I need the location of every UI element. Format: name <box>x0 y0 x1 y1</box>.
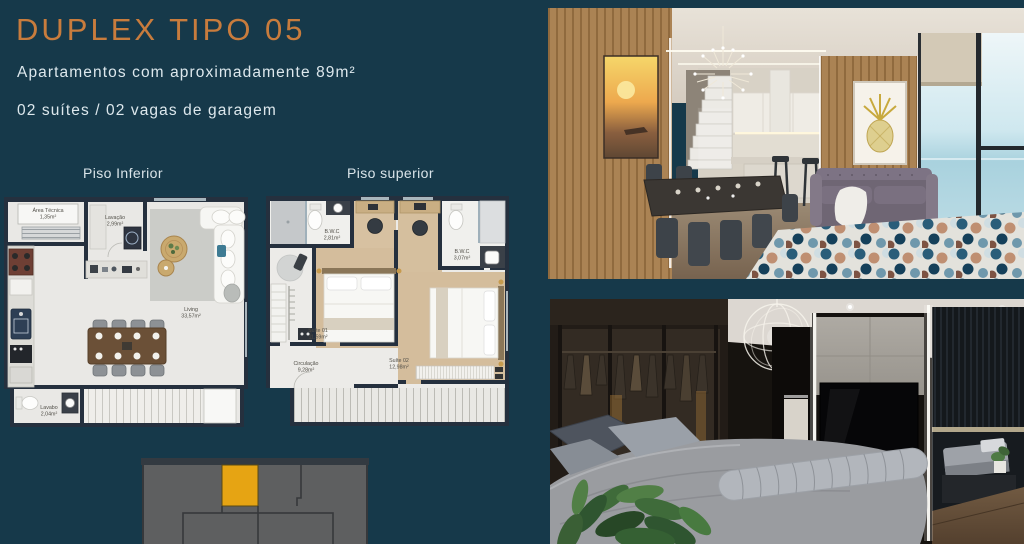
subtitle-area: Apartamentos com aproximadamente 89m² <box>17 64 356 82</box>
brochure-page: DUPLEX TIPO 05 Apartamentos com aproxima… <box>0 0 1024 544</box>
room-label-area-tecnica: Área Técnica <box>32 207 63 214</box>
mirror-reflection <box>924 305 1024 544</box>
page-title: DUPLEX TIPO 05 <box>16 12 306 48</box>
room-area-living: 33,57m² <box>181 314 201 320</box>
label-piso-superior: Piso superior <box>347 165 434 181</box>
kitchen-counter-items <box>86 261 147 278</box>
label-piso-inferior: Piso Inferior <box>83 165 163 181</box>
room-label-bwc1: B.W.C <box>324 229 339 235</box>
room-label-circulacao: Circulação <box>293 361 318 367</box>
suite-1-bed <box>317 268 402 342</box>
room-area-lavacao: 2,99m² <box>107 222 124 228</box>
keyplan-unit-locator <box>141 458 373 544</box>
seascape-painting <box>604 56 658 158</box>
room-label-suite1: Suíte 01 <box>308 328 328 334</box>
keyplan-highlighted-unit <box>222 465 258 506</box>
room-area-suite1: 11,59m² <box>308 335 327 341</box>
room-area-circulacao: 9,28m² <box>298 368 315 374</box>
kitchen <box>8 246 34 387</box>
deck <box>84 389 236 423</box>
room-area-suite2: 12,98m² <box>389 365 409 371</box>
room-area-bwc1: 2,81m² <box>324 236 341 242</box>
room-area-bwc2: 3,07m² <box>454 256 471 262</box>
photo-bedroom-render <box>550 299 1024 544</box>
staircase <box>686 70 732 169</box>
floorplan-piso-superior: B.W.C 2,81m² B.W.C 3,07m² Suíte 01 11,59… <box>266 196 509 426</box>
room-label-lavabo: Lavabo <box>40 405 57 411</box>
room-label-living: Living <box>184 307 198 313</box>
subtitle-features: 02 suítes / 02 vagas de garagem <box>17 102 277 120</box>
room-area-lavabo: 2,04m² <box>41 412 58 418</box>
room-label-bwc2: B.W.C <box>454 249 469 255</box>
throw-blanket <box>835 186 867 227</box>
photo-living-dining-render <box>548 8 1024 279</box>
room-area-area-tecnica: 1,35m² <box>40 215 57 221</box>
keyplan-top-band <box>141 458 369 465</box>
room-label-suite2: Suíte 02 <box>389 358 409 364</box>
pineapple-art <box>854 82 906 164</box>
floorplan-piso-inferior: Área Técnica 1,35m² Lavação 2,99m² Livin… <box>4 197 248 431</box>
room-label-lavacao: Lavação <box>105 215 125 221</box>
